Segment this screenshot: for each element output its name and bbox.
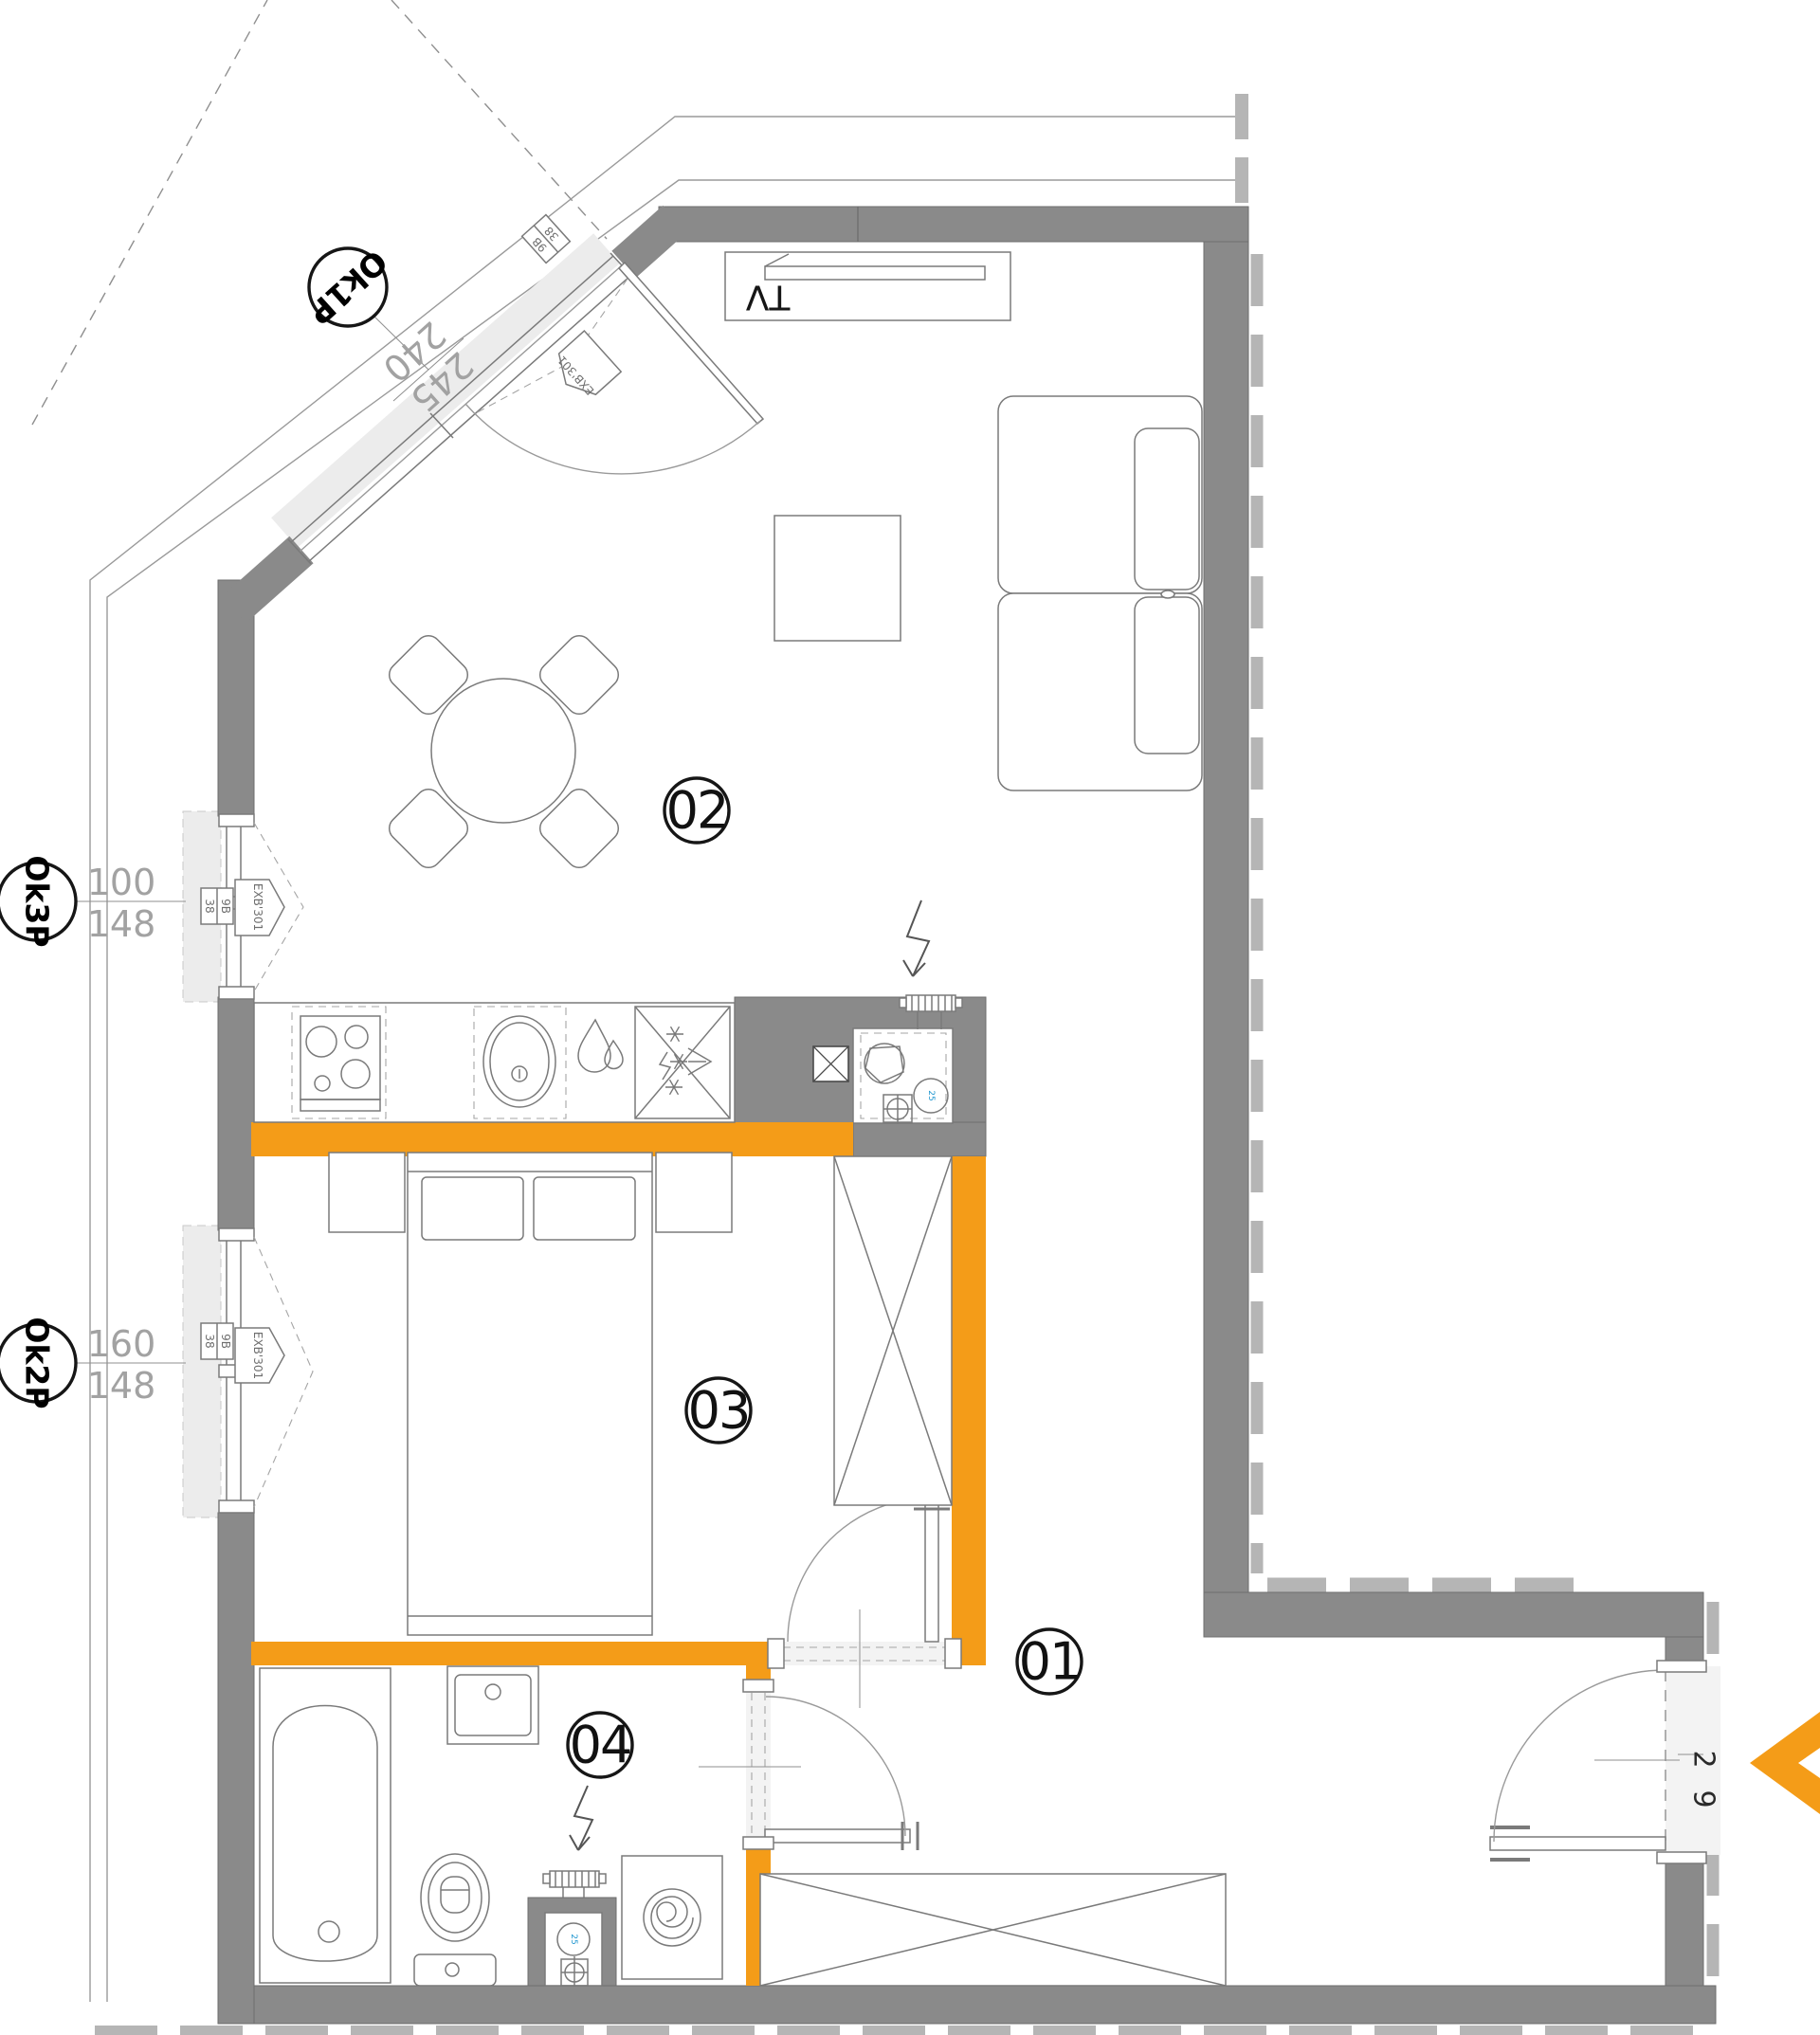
kitchen-counter — [254, 1003, 735, 1122]
tv-label: TV — [745, 278, 791, 317]
double-bed — [408, 1153, 652, 1635]
nightstand-right — [656, 1153, 732, 1232]
bathtub — [260, 1668, 391, 1983]
bedroom-door-opening — [780, 1642, 948, 1665]
doors — [699, 1494, 1706, 1863]
bedroom — [329, 1153, 952, 1635]
bathroom-door-opening — [746, 1690, 771, 1839]
svg-text:38: 38 — [203, 1334, 216, 1348]
svg-text:EXB'301: EXB'301 — [251, 1332, 264, 1379]
bedroom-wardrobe — [834, 1156, 952, 1505]
room-number: 01 — [1019, 1632, 1081, 1692]
bottom-wall — [218, 1986, 1716, 2024]
terrace-dashed-outline — [32, 0, 607, 425]
bedroom-door-leaf — [925, 1498, 938, 1642]
window-tag-ok2p: Ok2P 160 148 — [0, 1317, 186, 1408]
sofa — [998, 396, 1202, 790]
facade-line-end-dash — [1235, 94, 1248, 139]
entrance-arrow-icon — [1750, 1712, 1820, 1814]
top-wall — [659, 207, 1248, 242]
meter-box-balcony: 38 9B — [522, 215, 571, 263]
floor-plan: 25 25 TV — [0, 0, 1820, 2035]
right-wall — [1204, 242, 1248, 1592]
meter-box — [813, 1046, 848, 1081]
room-number: 02 — [666, 781, 728, 841]
chair — [535, 630, 623, 718]
chair — [384, 784, 472, 872]
facade-line-end-dash — [1235, 157, 1248, 203]
svg-text:EXB'301: EXB'301 — [251, 883, 264, 931]
hall — [760, 1874, 1226, 1986]
washbasin — [447, 1666, 538, 1744]
window-tag-ok3p: Ok3P 100 148 — [0, 855, 186, 947]
svg-text:9B: 9B — [219, 1334, 232, 1349]
chair — [535, 784, 623, 872]
room-number: 04 — [570, 1716, 631, 1775]
bathroom — [260, 1666, 722, 1986]
svg-text:38: 38 — [203, 899, 216, 913]
washing-machine — [622, 1856, 722, 1979]
nightstand-left — [329, 1153, 405, 1232]
svg-text:148: 148 — [87, 903, 156, 945]
electric-arrow-kitchen — [903, 900, 929, 976]
svg-text:100: 100 — [87, 862, 156, 903]
hall-wardrobe — [760, 1874, 1226, 1986]
svg-text:160: 160 — [87, 1323, 156, 1365]
bathroom-door — [699, 1680, 918, 1850]
coffee-table — [774, 516, 901, 641]
toilet — [414, 1854, 496, 1986]
bathroom-door-leaf — [765, 1829, 910, 1843]
window-tag-label: Ok2P — [19, 1317, 56, 1408]
dining-table — [431, 679, 575, 823]
bedroom-east-wall — [952, 1156, 986, 1642]
diagonal-wall-lower — [234, 550, 301, 609]
room-number: 03 — [688, 1381, 750, 1441]
room-label-02: 02 — [664, 778, 729, 843]
duct-label: 25 — [569, 1934, 578, 1944]
kitchen-shaft-base — [853, 1122, 986, 1156]
window-sill-ok2p — [183, 1226, 221, 1517]
room-label-04: 04 — [568, 1713, 632, 1777]
duct-label: 25 — [926, 1090, 936, 1100]
hall-north-wall — [1204, 1592, 1703, 1637]
svg-text:148: 148 — [87, 1365, 156, 1407]
dining-set — [384, 630, 623, 872]
svg-text:9B: 9B — [219, 899, 232, 914]
entrance-door-leaf — [1490, 1837, 1665, 1850]
balcony-door-leaf — [619, 263, 763, 424]
entrance-door-swing — [1494, 1670, 1665, 1842]
meter-box-ok2p: 38 9B — [201, 1323, 233, 1359]
meter-box-ok3p: 38 9B — [201, 888, 233, 924]
diagonal-wall-upper — [624, 219, 675, 264]
bedroom-south-wall — [251, 1642, 780, 1665]
window-tag-label: Ok3P — [19, 855, 56, 947]
svg-text:2: 2 — [1687, 1750, 1720, 1768]
room-label-03: 03 — [686, 1378, 751, 1443]
window-system-arrow-ok2p: EXB'301 — [235, 1328, 284, 1383]
room-label-01: 01 — [1017, 1629, 1082, 1694]
opening-fills — [746, 1642, 1720, 1855]
left-wall-middle — [218, 997, 254, 1230]
kitchen-bedroom-wall — [251, 1122, 853, 1156]
window-tag-ok1p: Ok1P 240 245 — [301, 243, 482, 421]
left-wall-lower — [218, 1513, 254, 2024]
window-system-arrow-balcony: EXB'301 — [548, 331, 621, 405]
window-system-arrow-ok3p: EXB'301 — [235, 880, 284, 936]
svg-text:9: 9 — [1687, 1790, 1720, 1808]
balcony-door-swing — [465, 404, 760, 474]
tv-cabinet: TV — [725, 252, 1010, 320]
bedroom-door — [768, 1494, 961, 1708]
electric-arrow-bathroom — [570, 1786, 592, 1850]
bathroom-radiator — [543, 1871, 606, 1899]
chair — [384, 630, 472, 718]
